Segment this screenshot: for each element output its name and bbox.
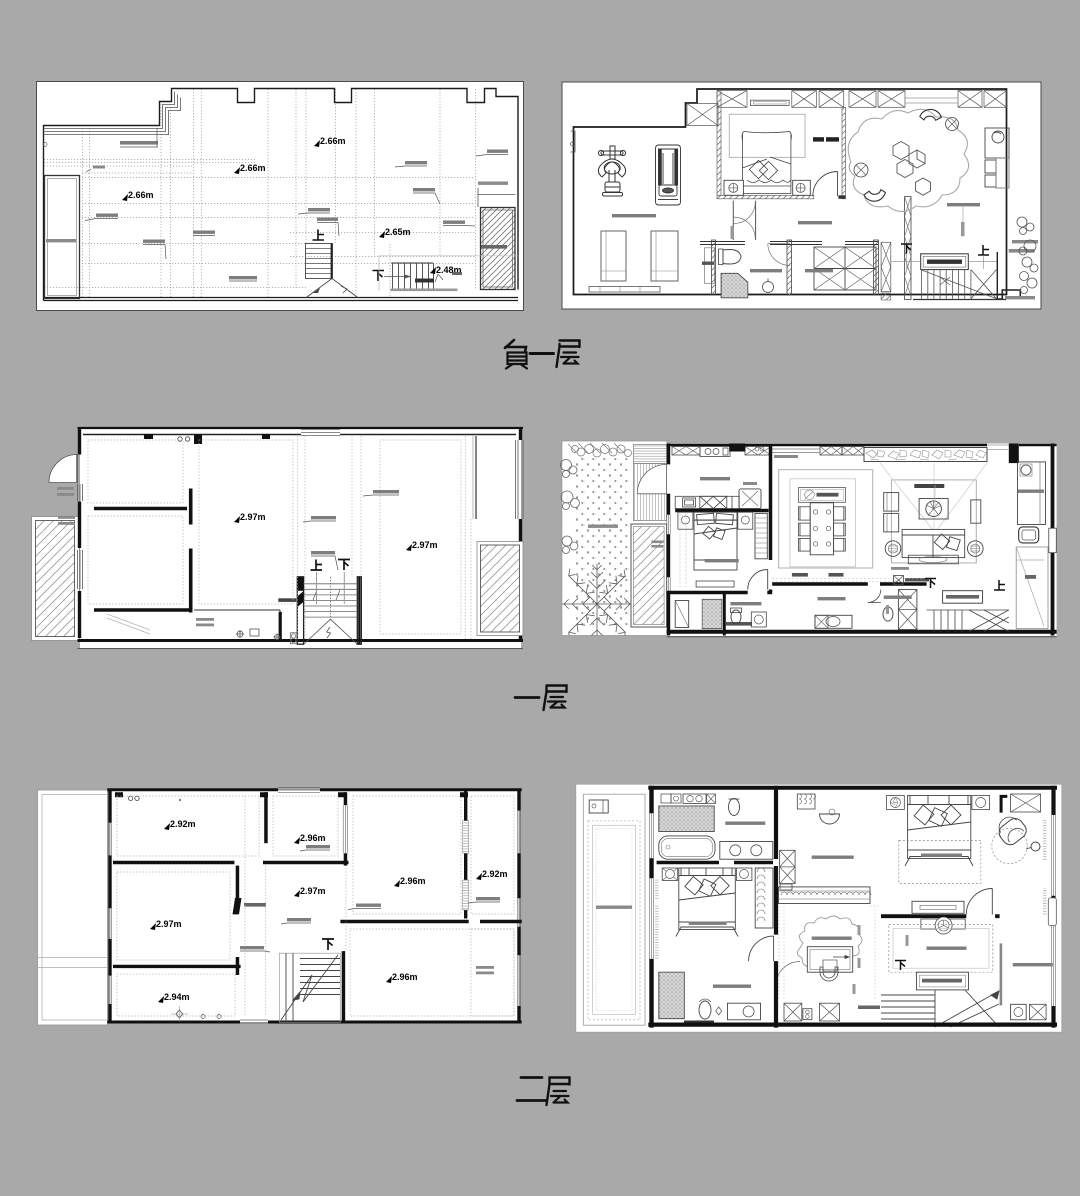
svg-text:2.94m: 2.94m: [164, 992, 190, 1002]
svg-text:2.97m: 2.97m: [240, 512, 266, 522]
svg-text:2.97m: 2.97m: [412, 540, 438, 550]
svg-text:2.92m: 2.92m: [482, 869, 508, 879]
svg-text:2.92m: 2.92m: [170, 819, 196, 829]
svg-text:2.96m: 2.96m: [392, 972, 418, 982]
svg-text:2.97m: 2.97m: [156, 919, 182, 929]
svg-text:2.96m: 2.96m: [400, 876, 426, 886]
svg-text:2.66m: 2.66m: [320, 136, 346, 146]
svg-text:2.97m: 2.97m: [300, 886, 326, 896]
svg-text:2.96m: 2.96m: [300, 833, 326, 843]
svg-text:2.66m: 2.66m: [240, 163, 266, 173]
svg-text:2.65m: 2.65m: [385, 227, 411, 237]
svg-text:2.66m: 2.66m: [128, 190, 154, 200]
